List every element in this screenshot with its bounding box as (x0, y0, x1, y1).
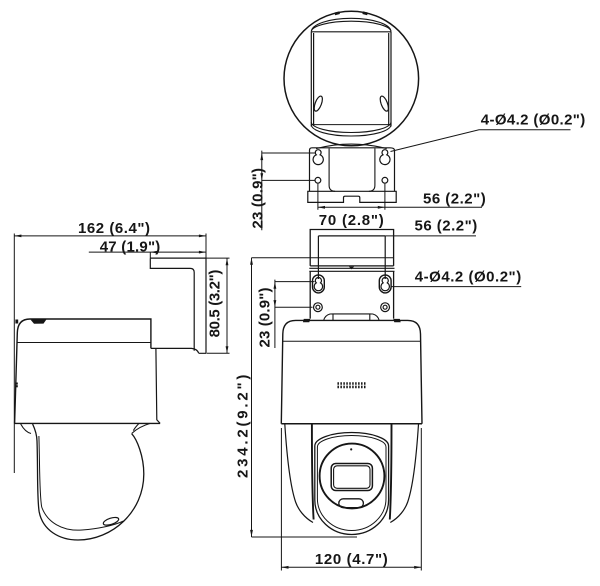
svg-text:23 (0.9"): 23 (0.9") (257, 288, 274, 348)
svg-text:56 (2.2"): 56 (2.2") (423, 191, 486, 208)
svg-text:4-Ø4.2 (Ø0.2"): 4-Ø4.2 (Ø0.2") (415, 269, 521, 286)
svg-text:80.5 (3.2"): 80.5 (3.2") (207, 270, 224, 338)
svg-text:234.2(9.2"): 234.2(9.2") (234, 375, 251, 478)
svg-text:23 (0.9"): 23 (0.9") (250, 168, 267, 229)
svg-text:47 (1.9"): 47 (1.9") (100, 239, 161, 256)
svg-text:4-Ø4.2 (Ø0.2"): 4-Ø4.2 (Ø0.2") (481, 112, 586, 129)
svg-text:56 (2.2"): 56 (2.2") (415, 218, 478, 235)
svg-text:70 (2.8"): 70 (2.8") (319, 212, 384, 229)
svg-text:162 (6.4"): 162 (6.4") (78, 220, 150, 237)
svg-text:120 (4.7"): 120 (4.7") (315, 551, 388, 568)
